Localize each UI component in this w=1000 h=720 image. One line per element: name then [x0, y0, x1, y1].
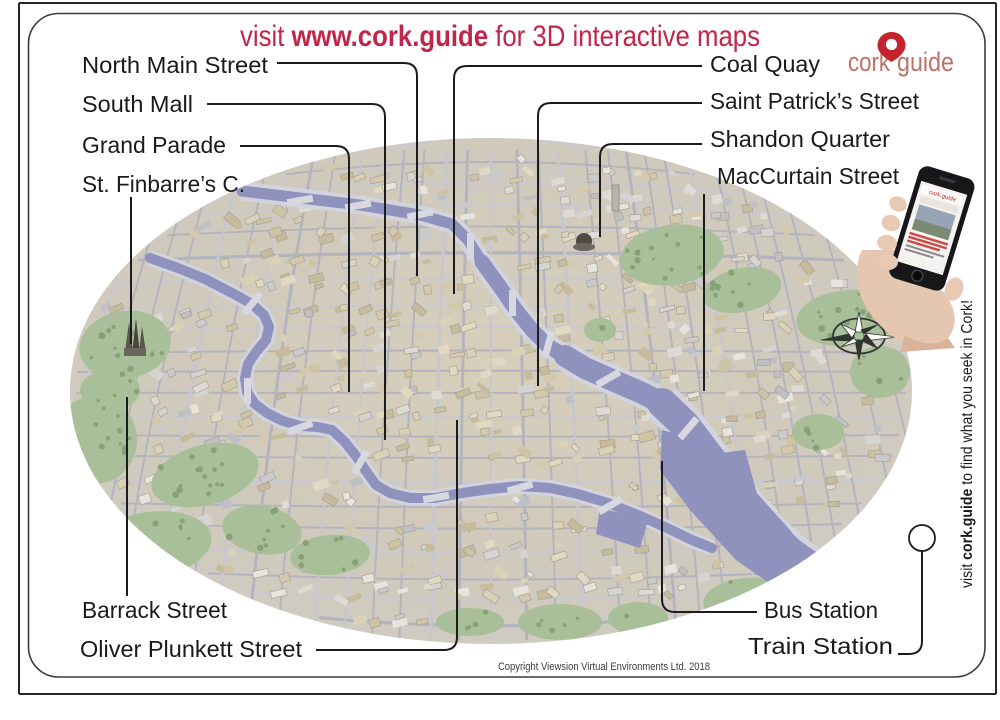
svg-text:visit www.cork.guide for 3D in: visit www.cork.guide for 3D interactive …	[240, 20, 760, 53]
svg-text:Bus Station: Bus Station	[764, 597, 878, 623]
svg-text:Barrack Street: Barrack Street	[82, 597, 228, 623]
svg-text:North Main Street: North Main Street	[82, 52, 269, 78]
svg-text:Oliver Plunkett Street: Oliver Plunkett Street	[80, 636, 303, 662]
svg-text:Train Station: Train Station	[748, 633, 893, 659]
svg-text:Shandon Quarter: Shandon Quarter	[710, 126, 890, 152]
svg-text:St. Finbarre’s C.: St. Finbarre’s C.	[82, 171, 245, 197]
svg-text:South Mall: South Mall	[82, 91, 193, 117]
svg-text:guide: guide	[897, 47, 954, 77]
svg-text:Grand Parade: Grand Parade	[82, 132, 226, 158]
svg-text:Saint Patrick’s Street: Saint Patrick’s Street	[710, 88, 920, 114]
svg-text:visit cork.guide to find what: visit cork.guide to find what you seek i…	[959, 300, 976, 588]
svg-text:Coal Quay: Coal Quay	[710, 51, 821, 77]
svg-text:Copyright Viewsion Virtual Env: Copyright Viewsion Virtual Environments …	[498, 661, 710, 673]
svg-text:MacCurtain Street: MacCurtain Street	[717, 163, 900, 189]
